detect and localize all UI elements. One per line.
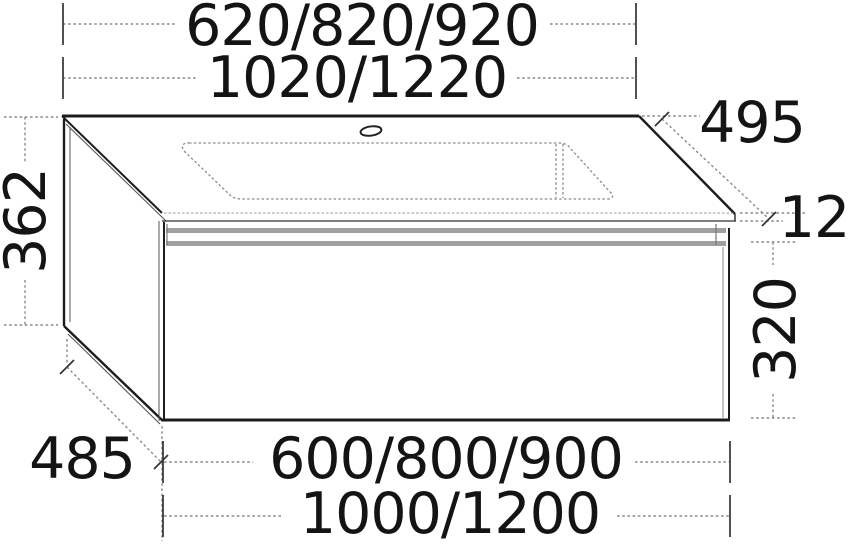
dimension-labels: 620/820/920 1020/1220 495 362 12 320 485… bbox=[0, 0, 849, 546]
drawer-top-shadow-band bbox=[166, 241, 726, 246]
side-panel-bottom-edge bbox=[64, 326, 163, 421]
recess-shadow-band bbox=[166, 228, 726, 233]
countertop-left-underside bbox=[66, 124, 166, 221]
vanity-dimension-drawing: 620/820/920 1020/1220 495 362 12 320 485… bbox=[0, 0, 852, 546]
countertop-left-edge bbox=[62, 116, 162, 213]
washbasin-bowl bbox=[182, 143, 612, 199]
countertop-slab bbox=[62, 116, 736, 221]
label-countertop-widths: 1020/1220 bbox=[207, 45, 507, 111]
label-cabinet-depth: 485 bbox=[29, 426, 135, 492]
label-cabinet-height: 320 bbox=[743, 277, 809, 383]
cabinet-body bbox=[64, 119, 730, 424]
tap-hole bbox=[360, 125, 382, 137]
label-total-height: 362 bbox=[0, 168, 59, 274]
label-overall-widths: 1000/1200 bbox=[300, 481, 600, 546]
technical-drawing-canvas: 620/820/920 1020/1220 495 362 12 320 485… bbox=[0, 0, 852, 546]
label-countertop-thickness: 12 bbox=[779, 185, 850, 251]
side-panel-bottom-inner bbox=[68, 334, 160, 424]
bowl-outline bbox=[182, 143, 612, 199]
label-countertop-depth: 495 bbox=[699, 90, 805, 156]
